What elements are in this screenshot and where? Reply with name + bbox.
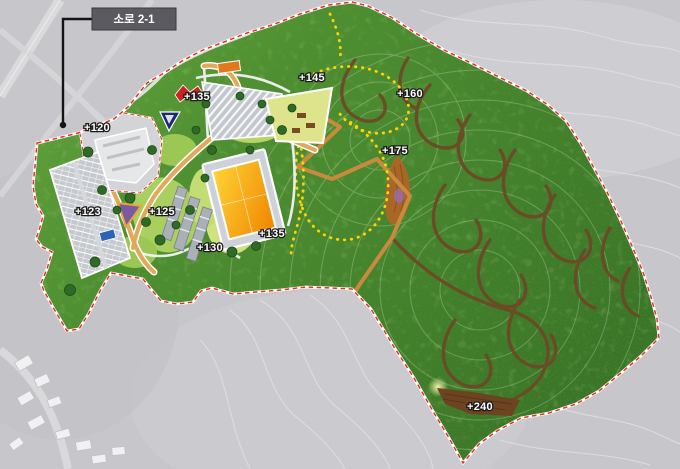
callout-leader-dot [60, 122, 66, 128]
site-plan-svg: +120 +123 +125 +130 +135 +135 +145 +160 … [0, 0, 680, 469]
elevation-label: +130 [197, 242, 223, 254]
elevation-label: +175 [382, 145, 408, 157]
elevation-label: +145 [299, 72, 325, 84]
elevation-label: +160 [397, 88, 423, 100]
site-plan-map: +120 +123 +125 +130 +135 +135 +145 +160 … [0, 0, 680, 469]
elevation-label: +135 [259, 228, 285, 240]
callout-label: 소로 2-1 [114, 13, 156, 26]
elevation-label: +123 [75, 206, 101, 218]
elevation-label: +125 [149, 206, 175, 218]
elevation-label: +135 [184, 91, 210, 103]
elevation-label: +240 [467, 401, 493, 413]
elevation-label: +120 [84, 122, 110, 134]
